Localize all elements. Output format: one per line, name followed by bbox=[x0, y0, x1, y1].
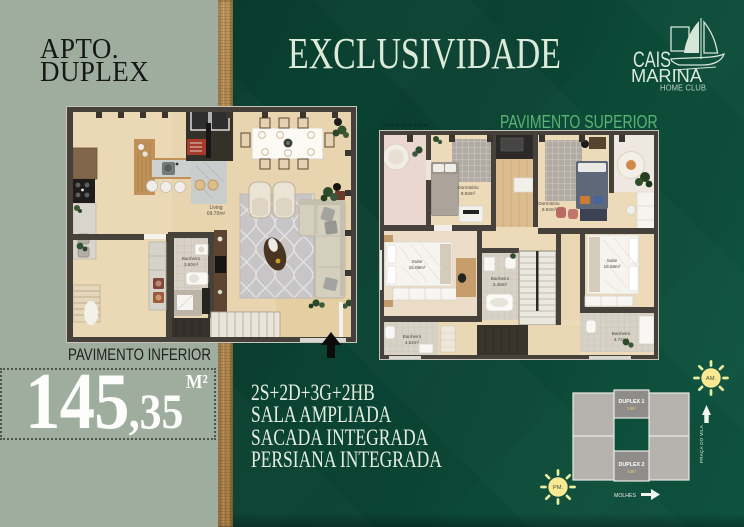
svg-text:Banheiro: Banheiro bbox=[182, 256, 201, 261]
svg-text:3.48m²: 3.48m² bbox=[493, 282, 508, 287]
svg-text:Suite: Suite bbox=[607, 258, 618, 263]
svg-text:145²: 145² bbox=[627, 406, 637, 411]
svg-text:Banheiro: Banheiro bbox=[491, 276, 510, 281]
svg-text:Banheiro: Banheiro bbox=[612, 331, 631, 336]
svg-text:MOLHES: MOLHES bbox=[614, 493, 636, 499]
svg-text:Suite: Suite bbox=[412, 259, 423, 264]
svg-text:Dormitório: Dormitório bbox=[538, 201, 560, 206]
svg-text:PM.: PM. bbox=[553, 485, 564, 491]
svg-text:9.83m²: 9.83m² bbox=[461, 191, 476, 196]
svg-text:3.80m²: 3.80m² bbox=[184, 262, 199, 267]
svg-text:PRAÇA DO VILA: PRAÇA DO VILA bbox=[699, 425, 704, 463]
svg-text:4.52m²: 4.52m² bbox=[405, 340, 420, 345]
svg-text:HOME CLUB: HOME CLUB bbox=[660, 83, 706, 93]
svg-text:16.58m²: 16.58m² bbox=[604, 264, 621, 269]
svg-text:15.09m²: 15.09m² bbox=[409, 265, 426, 270]
svg-text:69.70m²: 69.70m² bbox=[207, 211, 226, 217]
svg-text:DUPLEX 1: DUPLEX 1 bbox=[619, 399, 646, 405]
svg-text:Banheiro: Banheiro bbox=[403, 334, 422, 339]
svg-text:9.83m²: 9.83m² bbox=[542, 207, 557, 212]
svg-text:DUPLEX 2: DUPLEX 2 bbox=[619, 462, 645, 468]
svg-text:AM.: AM. bbox=[706, 376, 717, 382]
svg-text:Dormitório: Dormitório bbox=[457, 185, 479, 190]
svg-text:145²: 145² bbox=[627, 469, 637, 474]
